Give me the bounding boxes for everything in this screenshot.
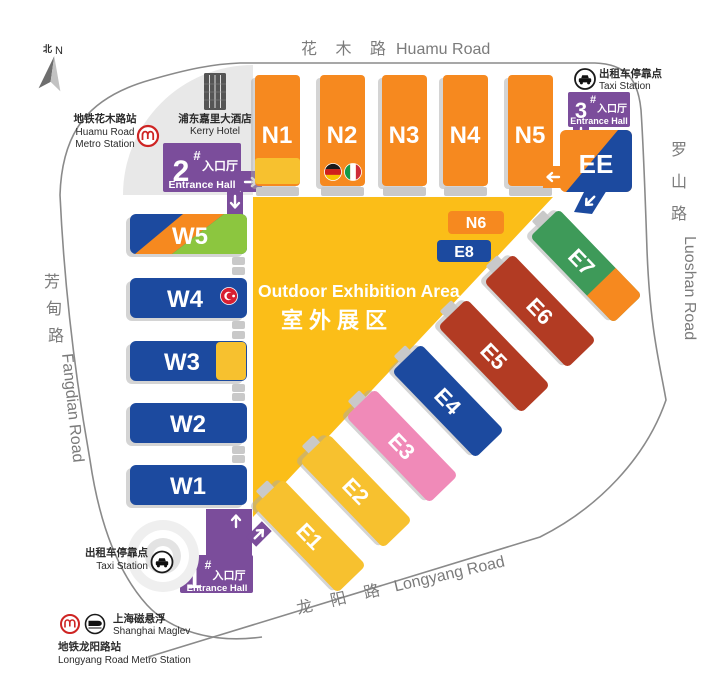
connector (321, 187, 364, 196)
svg-text:上海磁悬浮: 上海磁悬浮 (113, 612, 166, 625)
fangdian-road-label: 芳 甸 路 Fangdian Road (44, 273, 86, 463)
svg-text:出租车停靠点: 出租车停靠点 (599, 67, 662, 80)
svg-text:W4: W4 (167, 286, 204, 313)
svg-text:浦东嘉里大酒店: 浦东嘉里大酒店 (178, 112, 252, 125)
svg-text:Huamu Road: Huamu Road (76, 127, 135, 138)
svg-text:芳: 芳 (44, 273, 60, 291)
svg-text:入口厅: 入口厅 (213, 569, 246, 582)
svg-text:N: N (55, 45, 63, 57)
svg-text:#: # (590, 94, 596, 106)
taxi-icon (575, 69, 595, 89)
svg-text:山: 山 (671, 173, 687, 191)
svg-text:Longyang Road Metro Station: Longyang Road Metro Station (58, 655, 191, 666)
svg-text:W1: W1 (170, 473, 206, 500)
hall-n1: N1 (251, 75, 300, 196)
svg-text:N4: N4 (450, 122, 481, 149)
connector (383, 187, 426, 196)
svg-text:Entrance Hall: Entrance Hall (187, 583, 248, 594)
hall-w5: W5 (126, 214, 247, 257)
svg-text:N6: N6 (466, 215, 487, 232)
shanghai-maglev: 上海磁悬浮 Shanghai Maglev (61, 612, 190, 637)
luoshan-road-label: 罗 山 路 Luoshan Road (671, 141, 698, 340)
hall-w4: W4 (126, 278, 247, 321)
svg-text:入口厅: 入口厅 (202, 159, 238, 173)
longyang-road-metro-station: 地铁龙阳路站 Longyang Road Metro Station (58, 640, 191, 666)
connector (444, 187, 487, 196)
svg-text:#: # (193, 148, 201, 163)
svg-text:地铁花木路站: 地铁花木路站 (74, 112, 137, 125)
svg-text:北: 北 (43, 43, 52, 54)
huamu-road-metro-station: 地铁花木路站 Huamu Road Metro Station (74, 112, 159, 150)
hall-n3: N3 (378, 75, 427, 196)
taxi-station-north: 出租车停靠点 Taxi Station (575, 67, 662, 92)
hall-e8: E8 (437, 240, 491, 262)
hall-n6: N6 (448, 211, 504, 234)
hotel-icon (204, 73, 226, 110)
outdoor-area-label-en: Outdoor Exhibition Area (258, 281, 460, 301)
expo-map: 花 木 路 Huamu Road 罗 山 路 Luoshan Road 芳 甸 … (0, 0, 720, 675)
svg-text:罗: 罗 (671, 141, 687, 159)
flag-turkey-icon (221, 288, 238, 305)
svg-text:Huamu Road: Huamu Road (396, 41, 490, 58)
svg-text:地铁龙阳路站: 地铁龙阳路站 (58, 640, 121, 653)
svg-text:N3: N3 (389, 122, 420, 149)
svg-text:Shanghai Maglev: Shanghai Maglev (113, 626, 190, 637)
taxi-icon (152, 552, 173, 573)
svg-text:路: 路 (48, 327, 64, 345)
svg-text:Taxi Station: Taxi Station (96, 561, 148, 572)
hall-w2: W2 (126, 403, 247, 446)
hall-ee: EE (543, 130, 632, 214)
svg-text:Kerry Hotel: Kerry Hotel (190, 126, 240, 137)
map-svg: 花 木 路 Huamu Road 罗 山 路 Luoshan Road 芳 甸 … (0, 0, 720, 675)
svg-text:N2: N2 (327, 122, 358, 149)
svg-text:花 木 路: 花 木 路 (301, 40, 393, 58)
connector (509, 187, 552, 196)
taxi-station-south: 出租车停靠点 Taxi Station (85, 520, 199, 592)
flag-germany-icon (325, 164, 342, 181)
hall-w3: W3 (126, 341, 247, 384)
svg-text:#: # (205, 558, 212, 572)
svg-text:W5: W5 (172, 223, 208, 250)
svg-text:Metro Station: Metro Station (75, 139, 134, 150)
hall-w1: W1 (126, 465, 247, 508)
outdoor-area-label-zh: 室外展区 (281, 308, 393, 333)
metro-logo-icon (61, 615, 79, 633)
svg-text:入口厅: 入口厅 (597, 103, 627, 115)
huamu-road-label: 花 木 路 Huamu Road (301, 40, 490, 58)
north-arrow-icon (39, 55, 66, 92)
svg-text:EE: EE (579, 149, 614, 179)
hall-n4: N4 (439, 75, 488, 196)
svg-text:N1: N1 (262, 122, 293, 149)
svg-text:E8: E8 (454, 244, 474, 261)
hall-n2: N2 (316, 75, 365, 196)
svg-text:路: 路 (671, 205, 687, 223)
connector (256, 187, 299, 196)
svg-text:Luoshan Road: Luoshan Road (681, 236, 698, 340)
flag-italy-icon (345, 164, 362, 181)
svg-text:N5: N5 (515, 122, 546, 149)
svg-text:Entrance Hall: Entrance Hall (570, 116, 628, 126)
svg-text:Taxi Station: Taxi Station (599, 81, 651, 92)
metro-logo-icon (138, 126, 158, 146)
compass: 北 N (39, 43, 66, 91)
svg-text:W2: W2 (170, 411, 206, 438)
svg-text:甸: 甸 (46, 300, 62, 318)
svg-text:W3: W3 (164, 349, 200, 376)
svg-text:Entrance Hall: Entrance Hall (168, 179, 235, 191)
maglev-train-icon (86, 615, 105, 634)
svg-text:Longyang Road: Longyang Road (393, 553, 507, 595)
svg-text:出租车停靠点: 出租车停靠点 (85, 546, 148, 559)
